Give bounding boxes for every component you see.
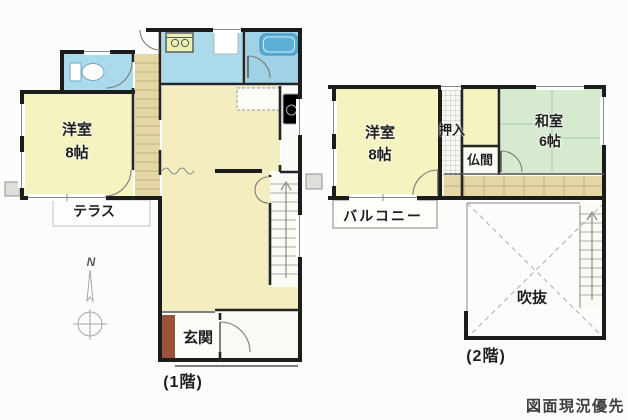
altar-room-label: 仏間: [467, 154, 493, 167]
closet-label: 押入: [439, 124, 465, 137]
floor-plan-canvas: 洋室 8帖 テラス 玄関 (1階) 洋室 8帖 押入 仏間 和室 6帖 バルコニ…: [0, 0, 628, 420]
western-room-2f-label: 洋室: [365, 126, 395, 141]
entrance-porch: [220, 313, 301, 360]
balcony-label: バルコニー: [343, 209, 423, 223]
terrace-label: テラス: [73, 204, 115, 218]
outdoor-unit-right: [306, 174, 322, 189]
floor2-caption: (2階): [466, 349, 506, 365]
western-room-1f-size: 8帖: [65, 146, 88, 161]
atrium-label: 吹抜: [517, 291, 547, 306]
japanese-room-size: 6帖: [539, 134, 561, 148]
outdoor-unit-left: [5, 182, 20, 196]
japanese-room-label: 和室: [535, 114, 563, 128]
stove-icon: [166, 33, 193, 52]
drawing-priority-note: 図面現況優先: [526, 395, 625, 416]
toilet-icon: [70, 63, 104, 81]
compass-north-label: N: [87, 256, 96, 268]
ldk-lower: [162, 171, 270, 311]
western-room-2f-size: 8帖: [368, 148, 391, 163]
floor1-caption: (1階): [163, 375, 203, 391]
washing-machine-icon: [214, 32, 238, 54]
bathtub-icon: [260, 34, 298, 55]
western-room-2f: [334, 89, 440, 197]
shoe-cabinet: [162, 315, 175, 360]
entrance-label: 玄関: [183, 331, 213, 346]
north-arrow-icon: [73, 270, 107, 340]
kitchen-counter: [237, 88, 280, 110]
western-room-1f-label: 洋室: [62, 123, 92, 138]
ldk-under-stairs: [270, 287, 301, 311]
